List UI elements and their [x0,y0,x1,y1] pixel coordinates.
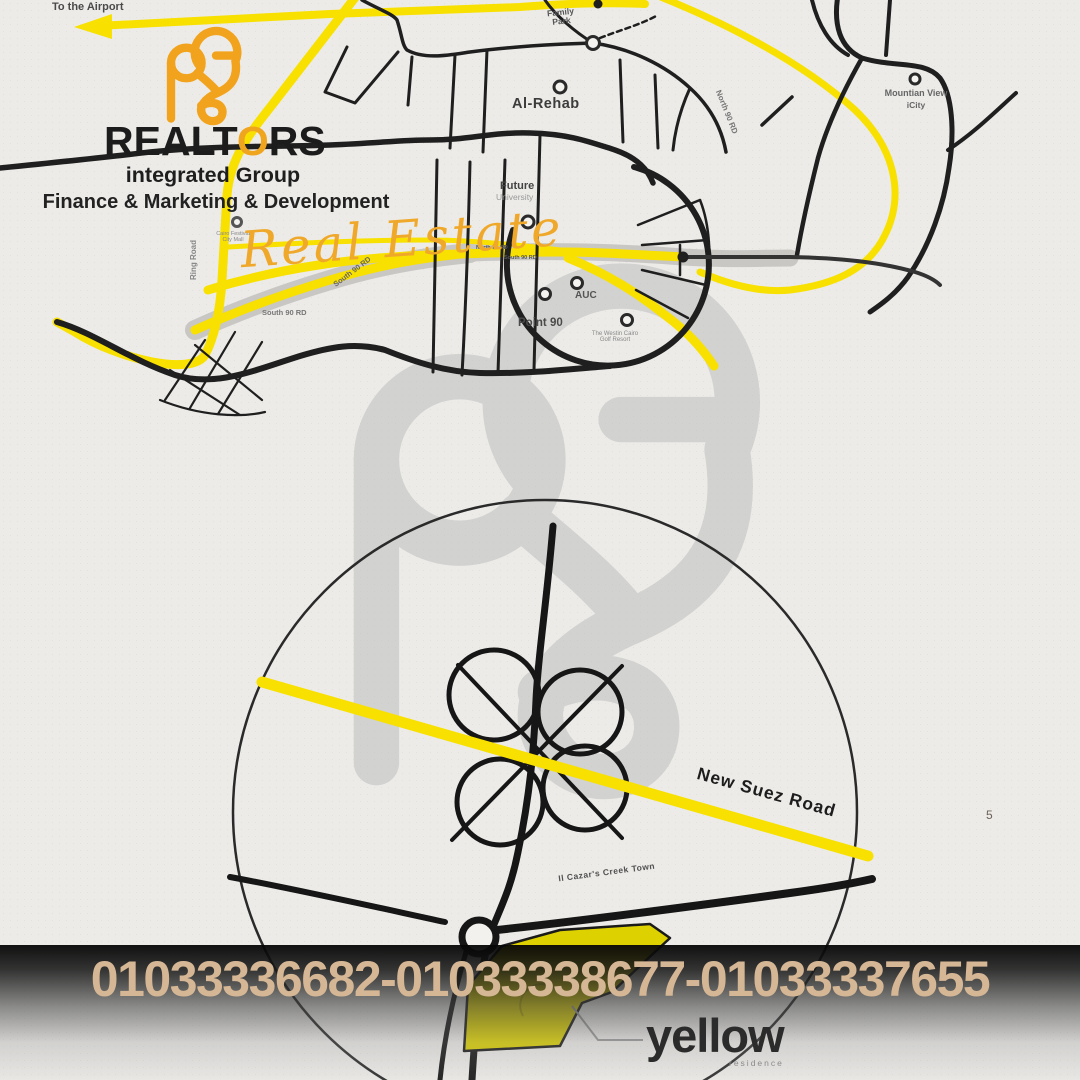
label-auc: AUC [575,291,597,302]
label-to-airport: To the Airport [52,2,124,14]
label-golf-resort: The Westin Cairo Golf Resort [586,331,644,344]
label-future: Future [500,181,534,193]
phone-numbers: 01033336682-01033338677-01033337655 [0,950,1080,1008]
wordmark-post: RS [269,118,326,164]
marker-icon [540,289,551,300]
family-park-marker-icon [587,37,600,50]
airport-arrowhead-icon [74,14,112,39]
wordmark-o: O [237,118,269,164]
junction-dot-icon [678,252,689,263]
new-suez-road [262,682,868,856]
company-subtitle: integrated Group [104,163,322,188]
al-rehab-marker-icon [554,81,566,93]
label-ring-road: Ring Road [190,240,198,280]
project-subtitle: residence [729,1058,784,1068]
point-90-marker-icon [622,315,633,326]
label-mountain-view: Mountian View [868,89,964,98]
label-al-rehab: Al-Rehab [512,97,580,112]
project-name: yellow [646,1008,784,1063]
company-tagline: Finance & Marketing & Development [0,191,432,214]
auc-marker-icon [572,278,583,289]
page-number: 5 [986,808,993,822]
label-icity: iCity [868,101,964,110]
label-south-90-h: South 90 RD [262,309,307,317]
rg-logo-icon [156,24,250,126]
mountain-view-marker-icon [910,74,920,84]
label-point-90: Point 90 [518,317,563,329]
company-wordmark: REALTORS [104,118,322,165]
poster: To the Airport Family Park Al-Rehab Futu… [0,0,1080,1080]
wordmark-pre: REALT [104,118,237,164]
